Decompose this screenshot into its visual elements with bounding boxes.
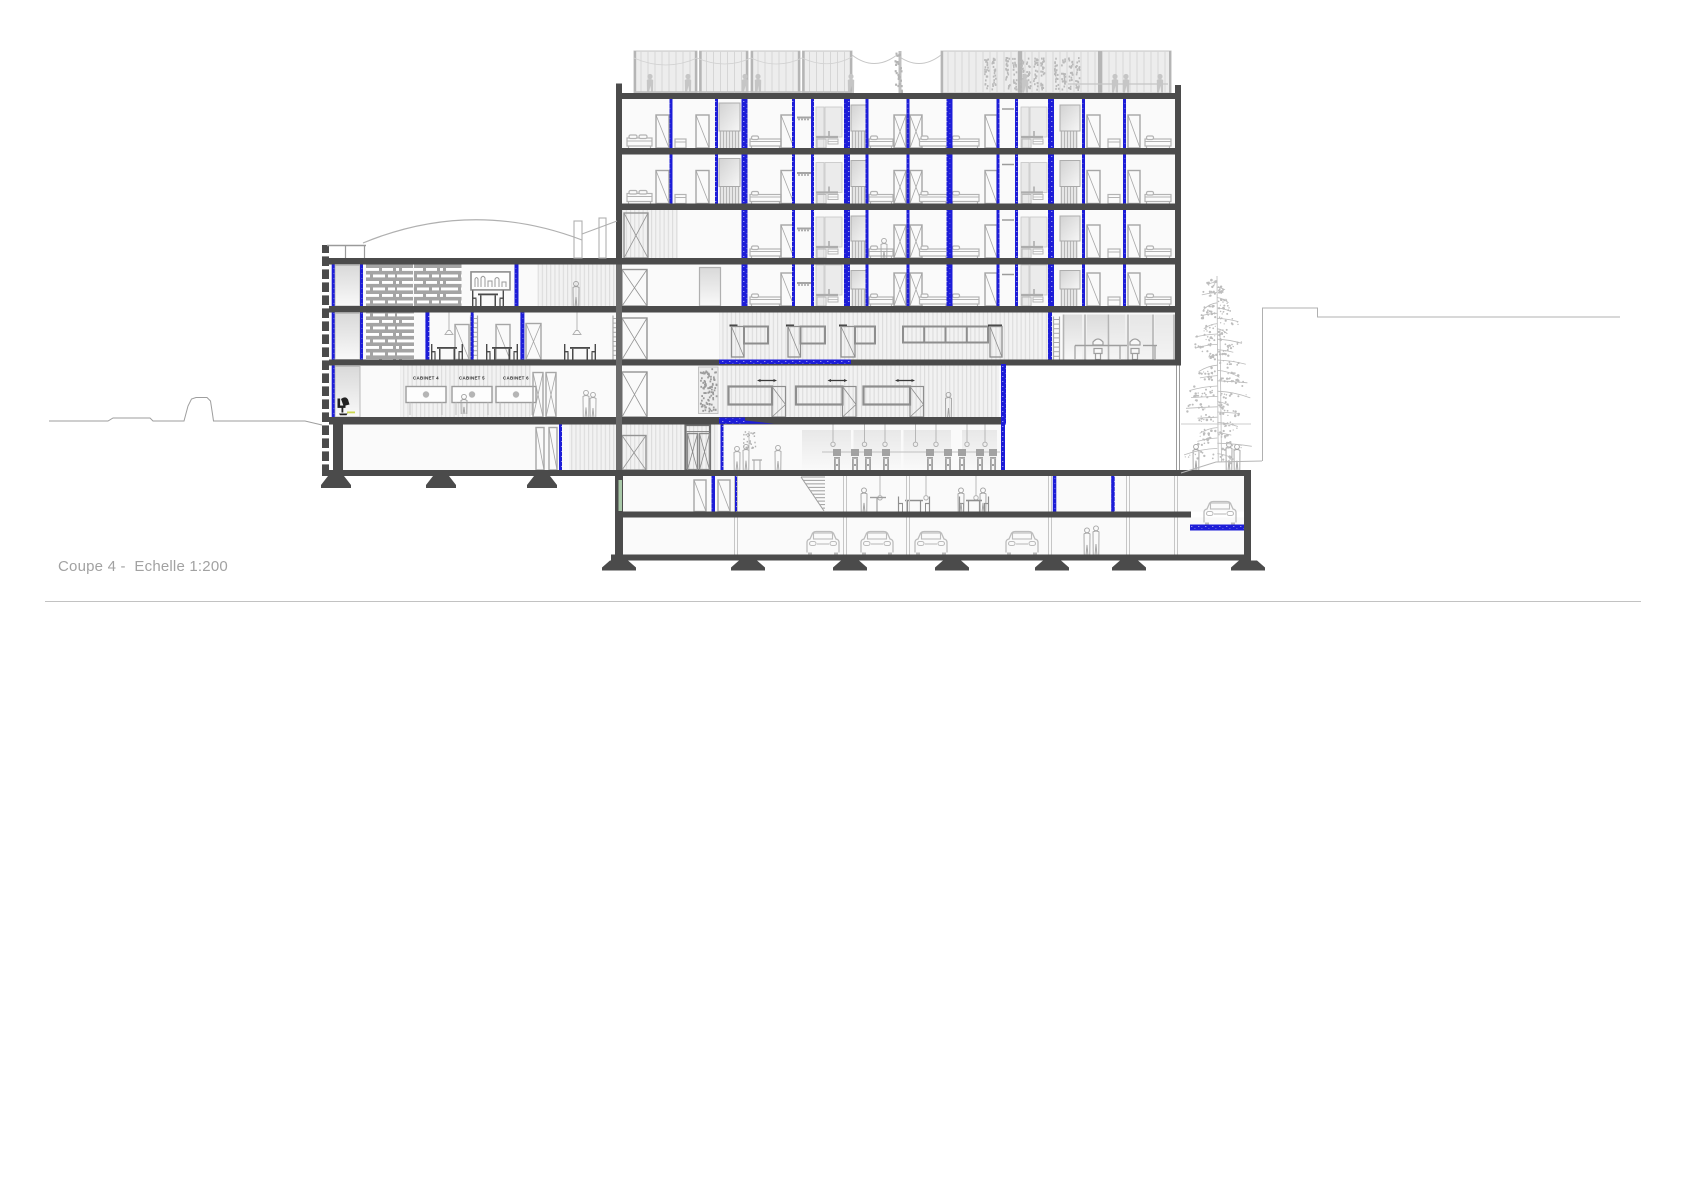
svg-text:CABINET 5: CABINET 5 bbox=[459, 376, 485, 381]
svg-text:Coupe 4 - Echelle 1:200: Coupe 4 - Echelle 1:200 bbox=[58, 558, 228, 575]
svg-text:CABINET 6: CABINET 6 bbox=[503, 376, 529, 381]
svg-text:CABINET 4: CABINET 4 bbox=[413, 376, 439, 381]
